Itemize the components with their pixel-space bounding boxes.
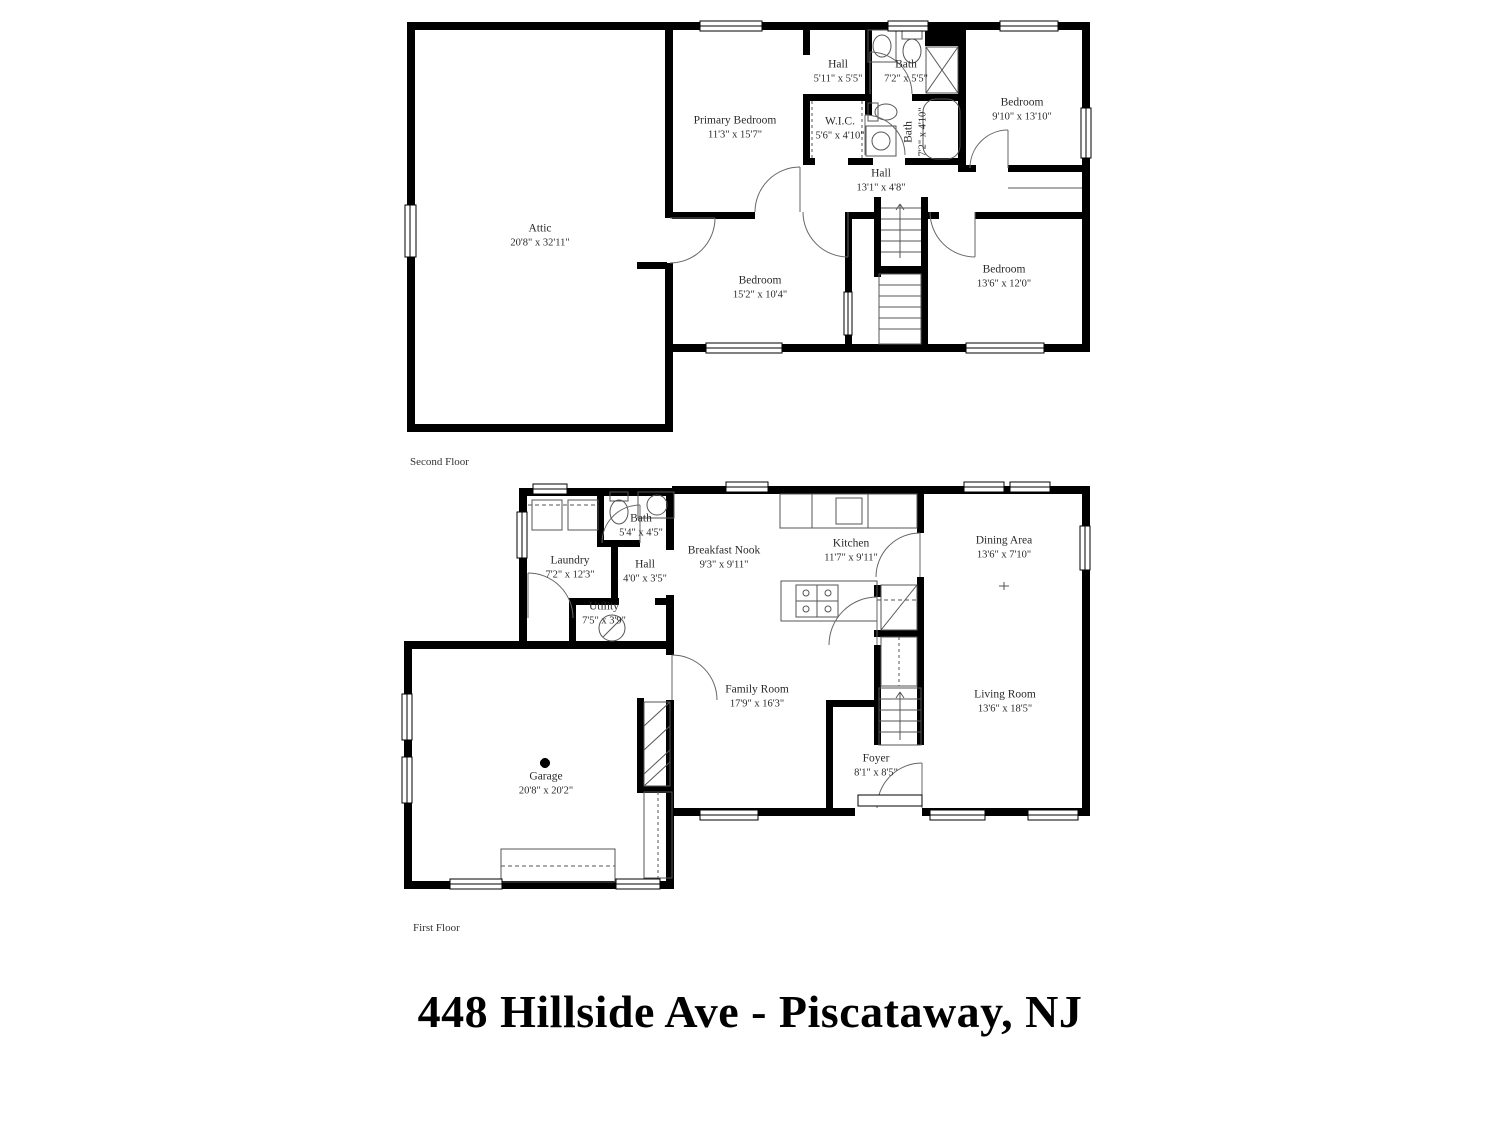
room-name: Hall [623, 558, 667, 573]
room-dims: 20'8" x 32'11" [510, 237, 569, 251]
room-dims: 7'2" x 12'3" [545, 569, 594, 583]
room-name: Living Room [974, 688, 1036, 703]
room-name: Hall [814, 58, 863, 73]
first-floor-caption: First Floor [413, 922, 460, 934]
room-label-bath-ensuite: Bath 7'2" x 4'10" [902, 107, 931, 156]
room-dims: 13'6" x 12'0" [977, 278, 1031, 292]
room-label-laundry: Laundry 7'2" x 12'3" [545, 554, 594, 583]
room-label-kitchen: Kitchen 11'7" x 9'11" [824, 537, 878, 566]
room-name: Attic [510, 222, 569, 237]
room-dims: 8'1" x 8'5" [854, 767, 898, 781]
room-name: Kitchen [824, 537, 878, 552]
room-label-bedroom-se: Bedroom 13'6" x 12'0" [977, 263, 1031, 292]
room-dims: 7'2" x 5'5" [884, 73, 928, 87]
room-label-dining-area: Dining Area 13'6" x 7'10" [976, 534, 1033, 563]
room-dims: 4'0" x 3'5" [623, 573, 667, 587]
room-name: Bath [884, 58, 928, 73]
room-name: Utility [582, 600, 626, 615]
room-dims: 9'10" x 13'10" [992, 111, 1052, 125]
room-dims: 13'1" x 4'8" [856, 182, 905, 196]
room-dims: 13'6" x 7'10" [976, 549, 1033, 563]
room-name: Bedroom [733, 274, 787, 289]
room-label-bedroom-sw: Bedroom 15'2" x 10'4" [733, 274, 787, 303]
room-dims: 9'3" x 9'11" [688, 559, 761, 573]
room-dims: 5'6" x 4'10" [815, 130, 864, 144]
room-name: Bedroom [977, 263, 1031, 278]
room-label-utility: Utility 7'5" x 3'9" [582, 600, 626, 629]
room-label-bath-first: Bath 5'4" x 4'5" [619, 512, 663, 541]
page-title: 448 Hillside Ave - Piscataway, NJ [0, 985, 1500, 1038]
room-name: Foyer [854, 752, 898, 767]
room-name: Dining Area [976, 534, 1033, 549]
room-dims: 5'11" x 5'5" [814, 73, 863, 87]
room-name: Hall [856, 167, 905, 182]
room-label-family-room: Family Room 17'9" x 16'3" [725, 683, 789, 712]
room-label-attic: Attic 20'8" x 32'11" [510, 222, 569, 251]
room-name: Breakfast Nook [688, 544, 761, 559]
room-name: Laundry [545, 554, 594, 569]
room-dims: 17'9" x 16'3" [725, 698, 789, 712]
room-label-bedroom-ne: Bedroom 9'10" x 13'10" [992, 96, 1052, 125]
room-name: Bedroom [992, 96, 1052, 111]
room-name: W.I.C. [815, 115, 864, 130]
room-name: Garage [519, 770, 573, 785]
room-label-breakfast-nook: Breakfast Nook 9'3" x 9'11" [688, 544, 761, 573]
second-floor-caption: Second Floor [410, 456, 469, 468]
room-dims: 20'8" x 20'2" [519, 785, 573, 799]
room-dims: 15'2" x 10'4" [733, 289, 787, 303]
room-dims: 7'5" x 3'9" [582, 615, 626, 629]
room-label-living-room: Living Room 13'6" x 18'5" [974, 688, 1036, 717]
room-name: Primary Bedroom [694, 114, 777, 129]
room-label-hall-first: Hall 4'0" x 3'5" [623, 558, 667, 587]
room-dims: 7'2" x 4'10" [917, 107, 931, 156]
room-label-wic: W.I.C. 5'6" x 4'10" [815, 115, 864, 144]
second-floor-windows [405, 21, 1091, 353]
room-label-foyer: Foyer 8'1" x 8'5" [854, 752, 898, 781]
room-label-hall-upper: Hall 5'11" x 5'5" [814, 58, 863, 87]
room-label-hall-main: Hall 13'1" x 4'8" [856, 167, 905, 196]
garage-column-marker [540, 758, 550, 768]
room-dims: 5'4" x 4'5" [619, 527, 663, 541]
room-name: Bath [902, 107, 917, 156]
room-dims: 11'7" x 9'11" [824, 552, 878, 566]
room-name: Family Room [725, 683, 789, 698]
room-dims: 13'6" x 18'5" [974, 703, 1036, 717]
room-label-bath-upper: Bath 7'2" x 5'5" [884, 58, 928, 87]
room-dims: 11'3" x 15'7" [694, 129, 777, 143]
room-label-primary-bedroom: Primary Bedroom 11'3" x 15'7" [694, 114, 777, 143]
room-name: Bath [619, 512, 663, 527]
room-label-garage: Garage 20'8" x 20'2" [519, 770, 573, 799]
